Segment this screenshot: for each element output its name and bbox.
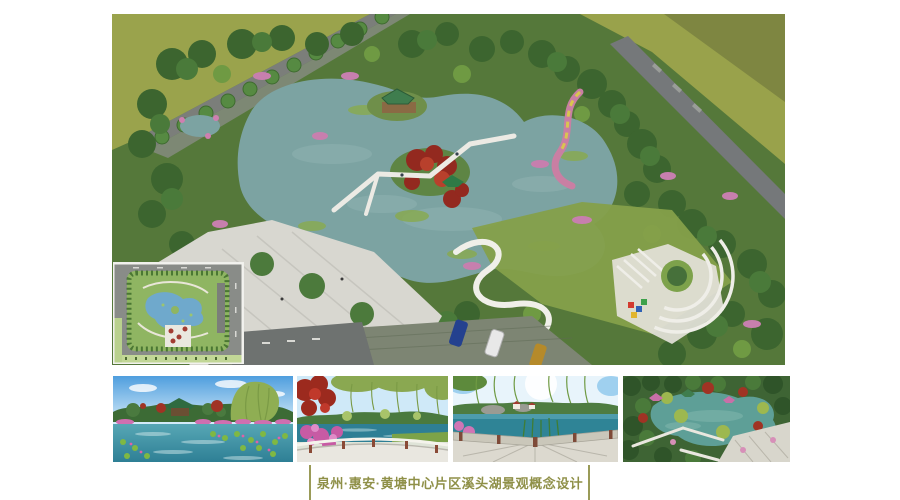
thumbnail-lake-lotus-pavilion bbox=[113, 376, 293, 462]
presentation-slide: 泉州·惠安·黄塘中心片区溪头湖景观概念设计 bbox=[0, 0, 900, 500]
title-divider-right bbox=[588, 465, 590, 500]
thumbnail-bridge-railing-lake bbox=[297, 376, 448, 462]
thumbnail-terrace-corner-lake bbox=[453, 376, 618, 462]
master-plan-inset bbox=[113, 262, 244, 364]
thumbnail-aerial-lake-pavilions bbox=[623, 376, 790, 462]
title-block: 泉州·惠安·黄塘中心片区溪头湖景观概念设计 bbox=[311, 465, 589, 500]
slide-title: 泉州·惠安·黄塘中心片区溪头湖景观概念设计 bbox=[317, 473, 583, 492]
